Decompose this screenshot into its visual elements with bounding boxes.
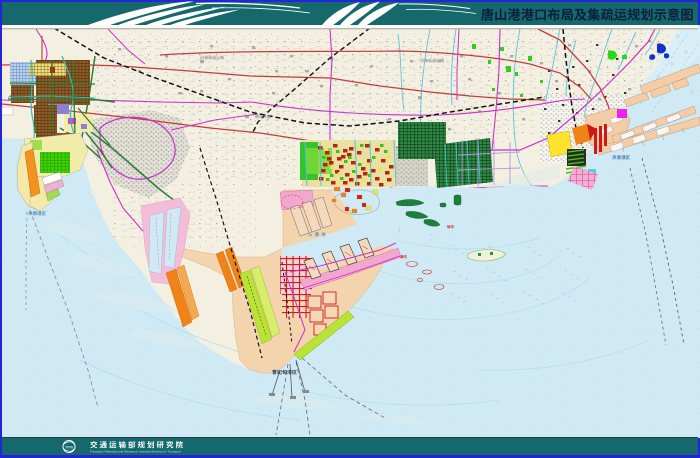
svg-text:Transport Planning and Researc: Transport Planning and Research Institut…	[90, 450, 181, 454]
svg-text:TPRI: TPRI	[65, 446, 73, 450]
